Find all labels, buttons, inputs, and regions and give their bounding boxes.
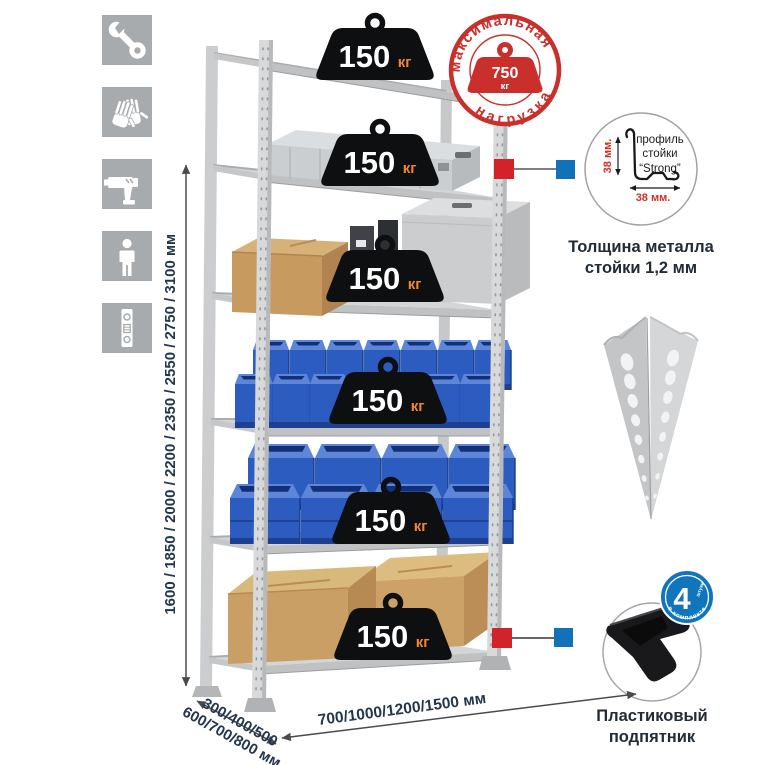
cardboard-box-shelf3 <box>232 238 348 316</box>
assembly-icons-column <box>102 15 152 353</box>
person-icon <box>102 231 152 281</box>
level-icon <box>102 303 152 353</box>
profile-label: профиль стойки “Strong” <box>625 133 695 176</box>
wrench-icon <box>102 15 152 65</box>
marker-blue-top <box>556 160 575 179</box>
plastic-foot-line1: Пластиковый <box>552 706 752 727</box>
max-load-stamp: максимальная нагрузка 750 кг <box>436 0 574 141</box>
profile-label-line1: профиль <box>625 133 695 147</box>
plastic-foot-line2: подпятник <box>552 727 752 748</box>
plastic-foot-caption: Пластиковый подпятник <box>552 706 752 749</box>
profile-label-line3: “Strong” <box>625 162 695 176</box>
metal-thickness-line2: стойки 1,2 мм <box>521 258 761 279</box>
profile-dim-horizontal: 38 мм. <box>623 192 683 204</box>
metal-thickness-caption: Толщина металла стойки 1,2 мм <box>521 237 761 280</box>
angle-post-picture <box>604 317 698 520</box>
stamp-unit: кг <box>501 81 510 92</box>
rack-back-left-post <box>200 46 218 688</box>
marker-red-bottom <box>492 628 512 648</box>
metal-thickness-line1: Толщина металла <box>521 237 761 258</box>
gloves-icon <box>102 87 152 137</box>
marker-red-top <box>494 159 514 179</box>
stamp-value: 750 <box>492 65 519 82</box>
height-dimension-label: 1600 / 1850 / 2000 / 2200 / 2350 / 2550 … <box>163 144 180 704</box>
profile-label-line2: стойки <box>625 147 695 161</box>
drill-icon <box>102 159 152 209</box>
scene-svg: 150 кг <box>0 0 765 765</box>
included-count-badge: 4 штуки в комплекте <box>660 570 714 624</box>
product-infographic: 150 кг <box>0 0 765 765</box>
profile-dim-vertical: 38 мм. <box>602 126 614 186</box>
marker-blue-bottom <box>554 628 573 647</box>
